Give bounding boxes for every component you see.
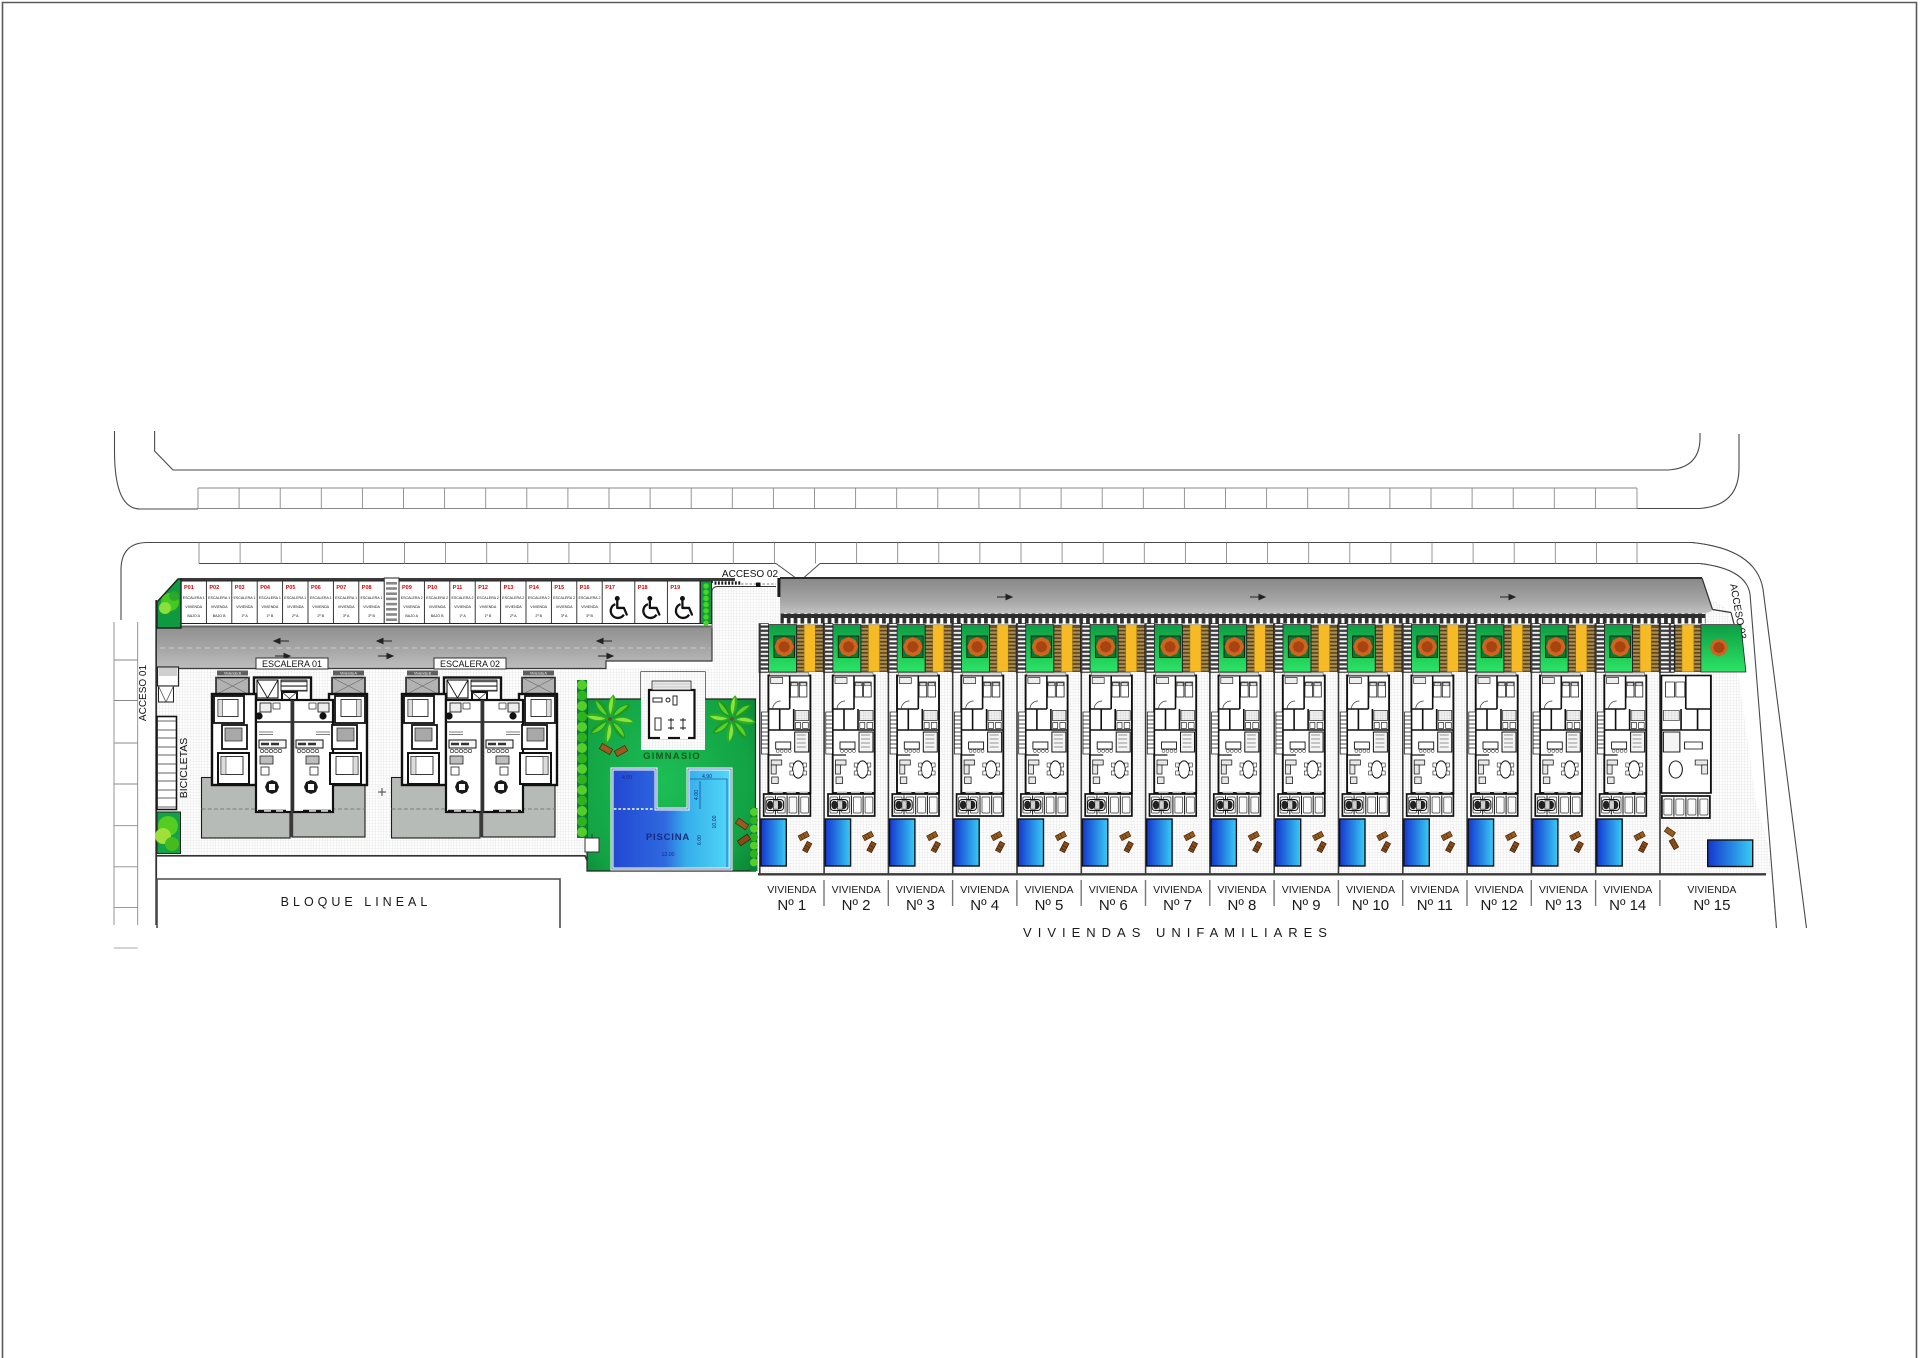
svg-text:ESCALERA 1: ESCALERA 1 xyxy=(234,596,256,600)
svg-text:VIVIENDA: VIVIENDA xyxy=(767,884,816,896)
svg-text:VIVIENDA: VIVIENDA xyxy=(1475,884,1524,896)
svg-text:Nº 3: Nº 3 xyxy=(906,897,935,914)
svg-text:Nº 7: Nº 7 xyxy=(1163,897,1192,914)
svg-text:ESCALERA 1: ESCALERA 1 xyxy=(361,596,383,600)
svg-text:VIVIENDA: VIVIENDA xyxy=(1539,884,1588,896)
svg-text:P01: P01 xyxy=(184,585,194,591)
svg-text:VIVIENDA: VIVIENDA xyxy=(1089,884,1138,896)
svg-text:ESCALERA 1: ESCALERA 1 xyxy=(335,596,357,600)
svg-text:Nº 1: Nº 1 xyxy=(777,897,806,914)
svg-text:VIVIENDA: VIVIENDA xyxy=(1687,884,1736,896)
svg-text:4.90: 4.90 xyxy=(702,774,712,780)
svg-text:ESCALERA 02: ESCALERA 02 xyxy=(440,659,500,669)
svg-text:BLOQUE LINEAL: BLOQUE LINEAL xyxy=(281,895,432,909)
svg-text:VIVIENDA: VIVIENDA xyxy=(1024,884,1073,896)
svg-text:P15: P15 xyxy=(554,585,564,591)
svg-text:VIVIENDA: VIVIENDA xyxy=(556,605,573,609)
svg-text:BAJO B: BAJO B xyxy=(431,614,444,618)
svg-text:P13: P13 xyxy=(504,585,514,591)
svg-text:PISCINA: PISCINA xyxy=(646,832,690,843)
svg-text:ESCALERA 01: ESCALERA 01 xyxy=(262,659,322,669)
svg-text:ESCALERA 1: ESCALERA 1 xyxy=(183,596,205,600)
svg-text:P18: P18 xyxy=(638,585,648,591)
svg-text:P02: P02 xyxy=(209,585,219,591)
svg-text:Nº 9: Nº 9 xyxy=(1292,897,1321,914)
svg-text:VIVIENDA: VIVIENDA xyxy=(312,605,329,609)
svg-text:BAJO A: BAJO A xyxy=(405,614,418,618)
svg-text:P06: P06 xyxy=(311,585,321,591)
svg-text:3º A: 3º A xyxy=(343,614,350,618)
svg-text:P07: P07 xyxy=(336,585,346,591)
svg-text:ESCALERA 1: ESCALERA 1 xyxy=(284,596,306,600)
svg-text:VIVIENDA: VIVIENDA xyxy=(287,605,304,609)
svg-text:P08: P08 xyxy=(362,585,372,591)
svg-text:P09: P09 xyxy=(402,585,412,591)
svg-text:BICICLETAS: BICICLETAS xyxy=(178,738,190,799)
svg-text:Nº 5: Nº 5 xyxy=(1035,897,1064,914)
svg-text:P16: P16 xyxy=(580,585,590,591)
svg-text:VIVIENDA: VIVIENDA xyxy=(581,605,598,609)
svg-text:VIVIENDA: VIVIENDA xyxy=(1153,884,1202,896)
svg-text:ACCESO 01: ACCESO 01 xyxy=(138,664,149,721)
svg-text:Nº 8: Nº 8 xyxy=(1227,897,1256,914)
svg-text:Nº 4: Nº 4 xyxy=(970,897,999,914)
svg-text:ESCALERA 2: ESCALERA 2 xyxy=(502,596,524,600)
svg-text:Nº 12: Nº 12 xyxy=(1481,897,1518,914)
svg-text:ESCALERA 1: ESCALERA 1 xyxy=(259,596,281,600)
svg-text:VIVIENDA: VIVIENDA xyxy=(480,605,497,609)
svg-text:2º B: 2º B xyxy=(317,614,324,618)
svg-text:Nº 10: Nº 10 xyxy=(1352,897,1389,914)
svg-text:2º A: 2º A xyxy=(292,614,299,618)
svg-text:ESCALERA 2: ESCALERA 2 xyxy=(452,596,474,600)
svg-text:Nº 14: Nº 14 xyxy=(1609,897,1646,914)
svg-text:10,00: 10,00 xyxy=(712,815,718,828)
svg-text:VIVIENDA: VIVIENDA xyxy=(832,884,881,896)
svg-text:P10: P10 xyxy=(427,585,437,591)
svg-text:3º B: 3º B xyxy=(368,614,375,618)
svg-text:VIVIENDA: VIVIENDA xyxy=(1282,884,1331,896)
svg-text:VIVIENDA: VIVIENDA xyxy=(338,605,355,609)
svg-text:P19: P19 xyxy=(670,585,680,591)
svg-text:ESCALERA 2: ESCALERA 2 xyxy=(401,596,423,600)
svg-text:1º B: 1º B xyxy=(267,614,274,618)
svg-text:VIVIENDA: VIVIENDA xyxy=(505,605,522,609)
svg-text:ESCALERA 2: ESCALERA 2 xyxy=(426,596,448,600)
svg-text:3º B: 3º B xyxy=(586,614,593,618)
svg-text:VIVIENDA: VIVIENDA xyxy=(403,605,420,609)
svg-text:VIVIENDA: VIVIENDA xyxy=(896,884,945,896)
svg-text:2º A: 2º A xyxy=(510,614,517,618)
svg-text:VIVIENDA: VIVIENDA xyxy=(211,605,228,609)
svg-text:VIVIENDA: VIVIENDA xyxy=(1346,884,1395,896)
svg-text:3º A: 3º A xyxy=(561,614,568,618)
svg-text:VIVIENDA: VIVIENDA xyxy=(262,605,279,609)
svg-text:P17: P17 xyxy=(605,585,615,591)
svg-text:ESCALERA 1: ESCALERA 1 xyxy=(310,596,332,600)
svg-text:P04: P04 xyxy=(260,585,271,591)
svg-text:ESCALERA 2: ESCALERA 2 xyxy=(579,596,601,600)
svg-text:4.00: 4.00 xyxy=(694,790,700,800)
svg-text:Nº 6: Nº 6 xyxy=(1099,897,1128,914)
svg-text:VIVIENDA: VIVIENDA xyxy=(1603,884,1652,896)
svg-text:ESCALERA 1: ESCALERA 1 xyxy=(208,596,230,600)
svg-text:12.00: 12.00 xyxy=(662,852,675,858)
svg-text:1º A: 1º A xyxy=(241,614,248,618)
svg-text:Nº 15: Nº 15 xyxy=(1693,897,1730,914)
svg-text:VIVIENDA: VIVIENDA xyxy=(530,605,547,609)
svg-text:P14: P14 xyxy=(529,585,540,591)
svg-text:ESCALERA 2: ESCALERA 2 xyxy=(553,596,575,600)
svg-text:BAJO A: BAJO A xyxy=(187,614,200,618)
svg-text:VIVIENDA: VIVIENDA xyxy=(1217,884,1266,896)
svg-text:1º A: 1º A xyxy=(459,614,466,618)
svg-text:Nº 13: Nº 13 xyxy=(1545,897,1582,914)
svg-text:4.00: 4.00 xyxy=(622,775,632,781)
svg-text:VIVIENDA: VIVIENDA xyxy=(454,605,471,609)
svg-text:6.00: 6.00 xyxy=(697,835,703,845)
svg-text:VIVIENDA: VIVIENDA xyxy=(185,605,202,609)
svg-text:BAJO B: BAJO B xyxy=(213,614,226,618)
svg-text:VIVIENDAS UNIFAMILIARES: VIVIENDAS UNIFAMILIARES xyxy=(1023,925,1333,940)
svg-text:VIVIENDA: VIVIENDA xyxy=(236,605,253,609)
svg-text:VIVIENDA: VIVIENDA xyxy=(1410,884,1459,896)
svg-text:1º B: 1º B xyxy=(485,614,492,618)
svg-text:ESCALERA 2: ESCALERA 2 xyxy=(528,596,550,600)
svg-text:VIVIENDA: VIVIENDA xyxy=(960,884,1009,896)
svg-text:VIVIENDA: VIVIENDA xyxy=(429,605,446,609)
svg-text:Nº 2: Nº 2 xyxy=(842,897,871,914)
svg-text:ESCALERA 2: ESCALERA 2 xyxy=(477,596,499,600)
svg-text:P03: P03 xyxy=(235,585,245,591)
svg-text:P05: P05 xyxy=(286,585,296,591)
svg-text:P12: P12 xyxy=(478,585,488,591)
svg-text:Nº 11: Nº 11 xyxy=(1417,897,1453,914)
svg-text:P11: P11 xyxy=(453,585,462,591)
svg-text:2º B: 2º B xyxy=(535,614,542,618)
svg-text:VIVIENDA: VIVIENDA xyxy=(363,605,380,609)
svg-text:GIMNASIO: GIMNASIO xyxy=(643,751,701,762)
